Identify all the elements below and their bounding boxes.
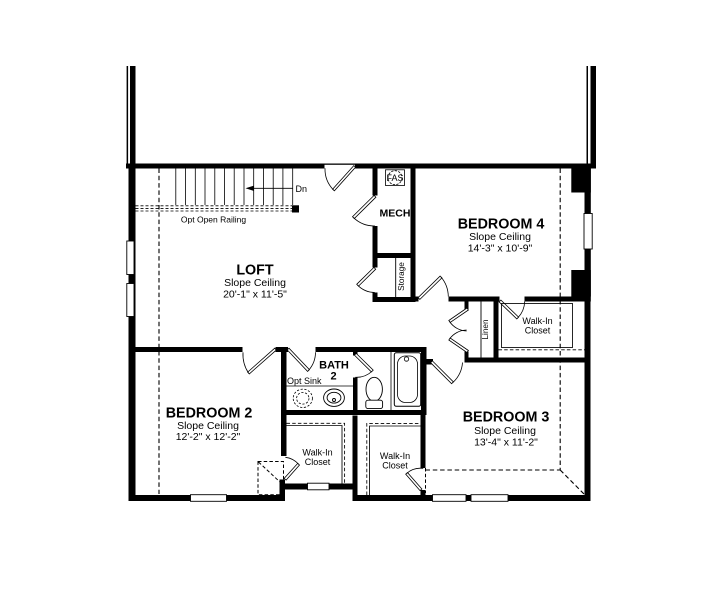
svg-text:BEDROOM 3: BEDROOM 3: [463, 410, 550, 426]
svg-text:Walk-In: Walk-In: [302, 448, 332, 458]
svg-text:12'-2" x 12'-2": 12'-2" x 12'-2": [176, 431, 241, 443]
svg-text:13'-4" x 11'-2": 13'-4" x 11'-2": [474, 437, 538, 449]
svg-text:MECH: MECH: [380, 207, 411, 219]
svg-text:Closet: Closet: [382, 461, 408, 471]
svg-text:Dn: Dn: [296, 184, 308, 194]
svg-text:2: 2: [330, 371, 336, 383]
svg-text:Slope Ceiling: Slope Ceiling: [224, 277, 286, 289]
svg-text:Opt Sink: Opt Sink: [287, 376, 322, 386]
svg-text:Slope Ceiling: Slope Ceiling: [469, 231, 531, 243]
svg-text:Slope Ceiling: Slope Ceiling: [474, 425, 536, 437]
svg-text:20'-1" x 11'-5": 20'-1" x 11'-5": [223, 288, 287, 300]
svg-text:Storage: Storage: [397, 262, 406, 291]
svg-text:Walk-In: Walk-In: [380, 451, 410, 461]
svg-text:Closet: Closet: [305, 457, 331, 467]
svg-text:Closet: Closet: [525, 326, 551, 336]
svg-text:Linen: Linen: [481, 319, 490, 339]
svg-text:FAS: FAS: [386, 173, 403, 183]
svg-text:Slope Ceiling: Slope Ceiling: [177, 420, 239, 432]
svg-text:BATH: BATH: [319, 359, 349, 371]
svg-text:BEDROOM 4: BEDROOM 4: [458, 216, 545, 232]
svg-text:Walk-In: Walk-In: [522, 316, 552, 326]
svg-text:14'-3" x 10'-9": 14'-3" x 10'-9": [468, 243, 533, 255]
svg-text:Opt Open Railing: Opt Open Railing: [181, 214, 246, 224]
